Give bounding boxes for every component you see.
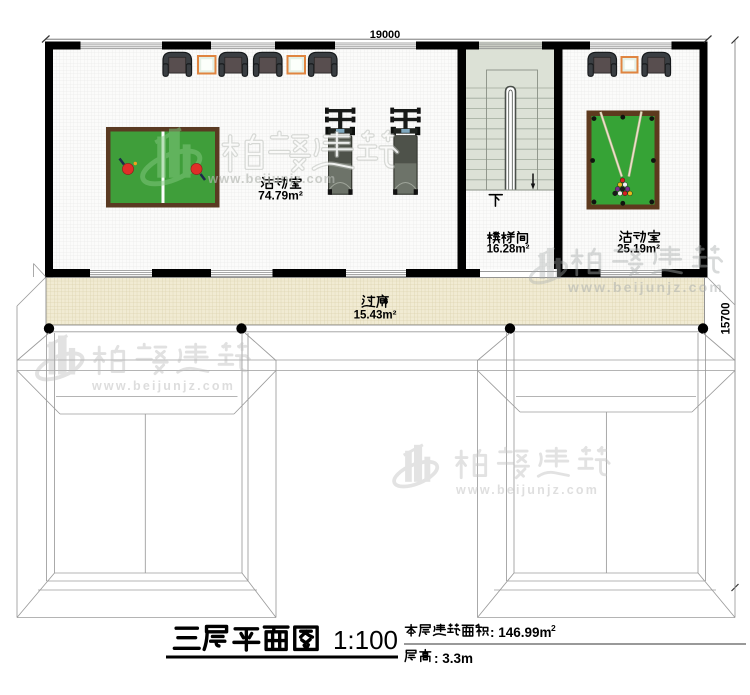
svg-text:2: 2 [551, 623, 556, 633]
svg-text:www.beijunjz.com: www.beijunjz.com [207, 171, 336, 186]
svg-text:www.beijunjz.com: www.beijunjz.com [91, 379, 235, 393]
svg-text:www.beijunjz.com: www.beijunjz.com [567, 279, 724, 295]
svg-text:1:100: 1:100 [333, 625, 398, 655]
svg-text:: 3.3m: : 3.3m [434, 651, 473, 666]
svg-text:74.79m²: 74.79m² [258, 189, 303, 203]
svg-text:: 146.99m: : 146.99m [490, 625, 552, 640]
svg-text:www.beijunjz.com: www.beijunjz.com [455, 483, 599, 497]
svg-text:15.43m²: 15.43m² [354, 310, 397, 322]
svg-text:16.28m²: 16.28m² [487, 244, 530, 256]
svg-text:15700: 15700 [721, 303, 733, 335]
svg-text:19000: 19000 [370, 29, 401, 41]
